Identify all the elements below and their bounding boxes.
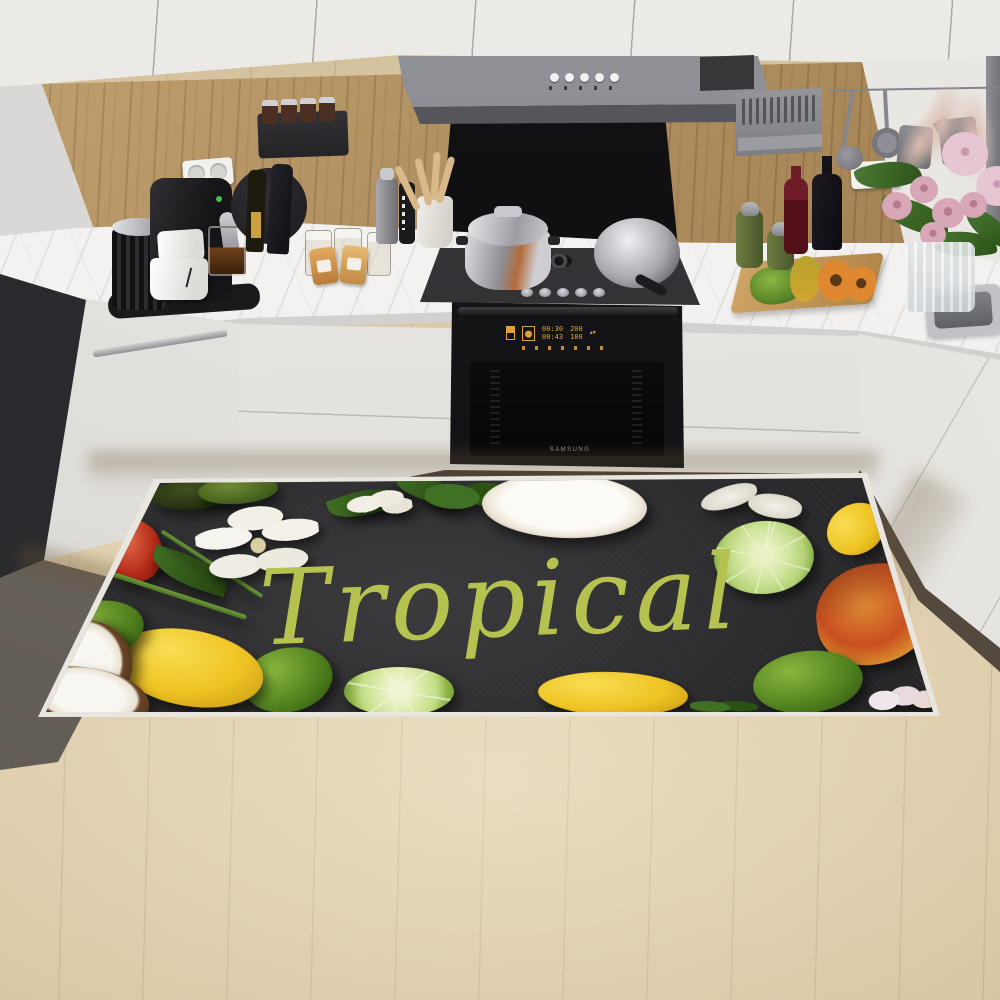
thermos-cap [380, 168, 394, 180]
oil-bottle [736, 210, 763, 268]
hood-button [580, 73, 589, 82]
vent-lip [738, 134, 822, 151]
glass-coffee-cup [208, 226, 246, 276]
oven-icon-row [522, 346, 610, 350]
vent-grill [742, 95, 816, 125]
oven-arrow-buttons: ▴▾ [590, 330, 596, 337]
oven-door [470, 362, 664, 456]
spice-jar [300, 98, 316, 122]
oven-temp-bottom: 180 [570, 333, 583, 341]
snack-pack [309, 246, 340, 285]
bottle-cap [741, 202, 759, 216]
pressure-cooker-handle [494, 206, 522, 217]
wine-bottle [812, 174, 842, 250]
oven-time-bottom: 00:43 [542, 333, 563, 341]
hood-button [610, 73, 619, 82]
spice-jar [281, 99, 297, 123]
pot-handle [456, 236, 468, 245]
chrysanthemum [942, 132, 988, 176]
snack-label [316, 259, 332, 273]
hood-button [550, 73, 559, 82]
wall-shelf [700, 55, 754, 91]
vent-box [736, 88, 822, 157]
rose [960, 192, 987, 218]
hood-button [565, 73, 574, 82]
flower-vase [905, 242, 975, 312]
oven-clock-icon [506, 326, 515, 340]
mat-title-svg: Tropical [130, 468, 870, 718]
wine-bottle [267, 163, 294, 254]
power-led [216, 196, 222, 202]
oven-display: 00:30 00:43 200 180 ▴▾ [506, 322, 656, 344]
mat-title-text: Tropical [257, 531, 741, 670]
snack-pack [339, 245, 369, 286]
oven-time-readout: 00:30 00:43 [542, 325, 563, 341]
oven-mode-icon [522, 326, 535, 341]
kitchen-scene: 00:30 00:43 200 180 ▴▾ SAMSUNG [0, 0, 1000, 1000]
rose [910, 176, 938, 203]
hob-knob [593, 288, 605, 297]
hood-button [595, 73, 604, 82]
hood-button-glyphs [549, 86, 621, 90]
hob-knob [575, 288, 587, 297]
rose [882, 192, 912, 220]
oven-temp-readout: 200 180 [570, 325, 583, 341]
spice-jar [319, 97, 335, 121]
oven-time-top: 00:30 [542, 325, 563, 333]
utensil-crock [417, 196, 453, 248]
black-bottle-label [402, 196, 405, 230]
oven-temp-top: 200 [570, 325, 583, 333]
pressure-cooker-lid [468, 212, 548, 246]
ladle-icon [836, 146, 863, 170]
wine-carafe [784, 178, 808, 254]
bottle-label [251, 212, 261, 238]
pot-handle [548, 236, 560, 245]
spice-jar [262, 100, 278, 124]
thermos-bottle [376, 176, 398, 244]
snack-label [347, 257, 362, 270]
hob-knob [557, 288, 569, 297]
oven-handle [458, 307, 678, 315]
liquor-bottle [246, 170, 267, 253]
hob-knob [539, 288, 551, 297]
